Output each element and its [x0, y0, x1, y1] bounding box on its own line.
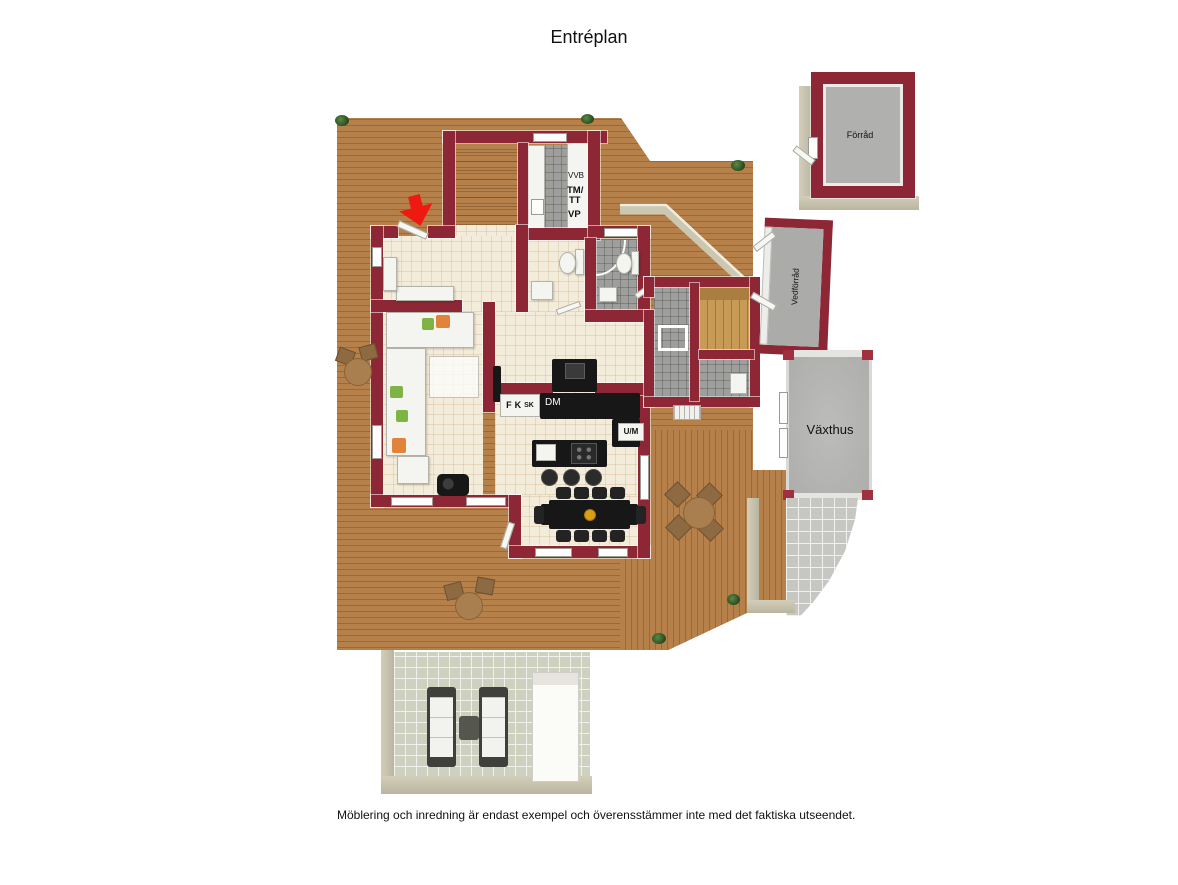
dining-chair	[574, 530, 589, 542]
staircase	[456, 143, 518, 227]
wood-stove	[437, 474, 469, 496]
laundry-appliance-column	[528, 145, 545, 237]
window	[598, 548, 628, 557]
pillow	[396, 410, 408, 422]
disclaimer-caption: Möblering och inredning är endast exempe…	[337, 808, 857, 822]
toilet	[631, 251, 639, 275]
bar-stool	[541, 469, 558, 486]
deck-table	[455, 592, 483, 620]
wall	[585, 238, 596, 312]
cooktop	[571, 443, 597, 464]
toilet	[575, 249, 584, 275]
kitchen-cabinet-fksk: F K SK	[500, 394, 540, 417]
wall	[585, 310, 648, 322]
wall	[518, 143, 528, 235]
annex-steps	[673, 405, 701, 420]
window	[604, 228, 638, 237]
dining-chair	[636, 506, 646, 524]
vaxthus-door	[779, 428, 788, 458]
wall	[371, 226, 383, 507]
retaining-wall	[747, 600, 795, 613]
wall	[509, 546, 650, 558]
armchair	[397, 456, 429, 484]
label-k: K	[515, 401, 522, 410]
pillow	[422, 318, 434, 330]
wall	[443, 131, 607, 143]
island-sink	[536, 444, 556, 461]
vaxthus-beam	[790, 350, 868, 357]
toilet	[559, 252, 576, 274]
wall	[644, 397, 760, 407]
wall	[516, 225, 528, 312]
floor-plan-canvas: Entréplan	[0, 0, 1178, 885]
deck-table	[683, 497, 715, 529]
label-dm: DM	[545, 398, 561, 409]
label-tt: TT	[569, 196, 581, 206]
plant-icon	[335, 115, 349, 126]
laundry-floor	[545, 145, 567, 237]
sun-lounger	[479, 687, 508, 767]
pillow	[436, 315, 450, 328]
dining-chair	[610, 487, 625, 499]
table-centerpiece	[584, 509, 596, 521]
dining-chair	[574, 487, 589, 499]
patio-side-table	[459, 716, 479, 740]
bar-stool	[563, 469, 580, 486]
wall	[699, 350, 754, 359]
wall	[638, 226, 650, 312]
pillow	[392, 438, 406, 453]
window	[372, 425, 382, 459]
vaxthus-corner	[783, 350, 794, 360]
wall	[644, 277, 760, 287]
shower-tray	[730, 373, 747, 394]
laundry-sink	[531, 199, 544, 215]
wall	[644, 310, 654, 407]
plant-icon	[731, 160, 745, 171]
dining-chair	[556, 487, 571, 499]
vaxthus-door	[779, 392, 788, 424]
wall	[588, 131, 600, 240]
plant-icon	[652, 633, 666, 644]
forrad-outer-wall	[799, 196, 919, 210]
window	[640, 455, 649, 500]
window	[533, 133, 567, 142]
bar-stool	[585, 469, 602, 486]
vedforrad-label: Vedförråd	[767, 227, 823, 347]
page-title: Entréplan	[0, 27, 1178, 48]
plant-icon	[581, 114, 594, 124]
floor-hatch	[658, 325, 688, 351]
window	[466, 497, 506, 506]
window	[535, 548, 572, 557]
dining-chair	[534, 506, 544, 524]
vaxthus-corner	[862, 350, 873, 360]
oven-grill	[565, 363, 585, 379]
sink	[599, 287, 617, 302]
patio-bench	[532, 672, 579, 782]
sauna-bench	[699, 287, 750, 300]
label-vvb: VVB	[568, 172, 584, 180]
window	[372, 247, 382, 267]
forrad-label: Förråd	[820, 131, 900, 140]
toilet	[616, 253, 632, 274]
wall	[371, 300, 462, 312]
wall	[443, 131, 455, 235]
um-unit: U/M	[618, 423, 644, 441]
dining-chair	[610, 530, 625, 542]
dining-chair	[592, 530, 607, 542]
coffee-table	[429, 356, 479, 398]
deck-chair	[475, 577, 496, 596]
label-sk: SK	[524, 402, 534, 409]
wall	[428, 226, 455, 238]
retaining-wall	[747, 498, 759, 610]
label-f: F	[506, 401, 512, 410]
sun-lounger	[427, 687, 456, 767]
hall-bench	[396, 286, 454, 301]
dining-chair	[592, 487, 607, 499]
label-um: U/M	[624, 428, 639, 436]
vaxthus-corner	[862, 490, 873, 500]
vaxthus-label: Växthus	[788, 423, 872, 437]
label-vp: VP	[568, 210, 581, 220]
garden-path-tiles	[786, 498, 858, 616]
patio-wall	[381, 650, 394, 792]
dining-chair	[556, 530, 571, 542]
plant-icon	[727, 594, 740, 605]
window	[391, 497, 433, 506]
deck-table	[344, 358, 372, 386]
wall	[644, 277, 654, 297]
hall-wardrobe	[383, 257, 397, 291]
sink	[531, 281, 553, 300]
wall	[690, 283, 699, 401]
pillow	[390, 386, 403, 398]
